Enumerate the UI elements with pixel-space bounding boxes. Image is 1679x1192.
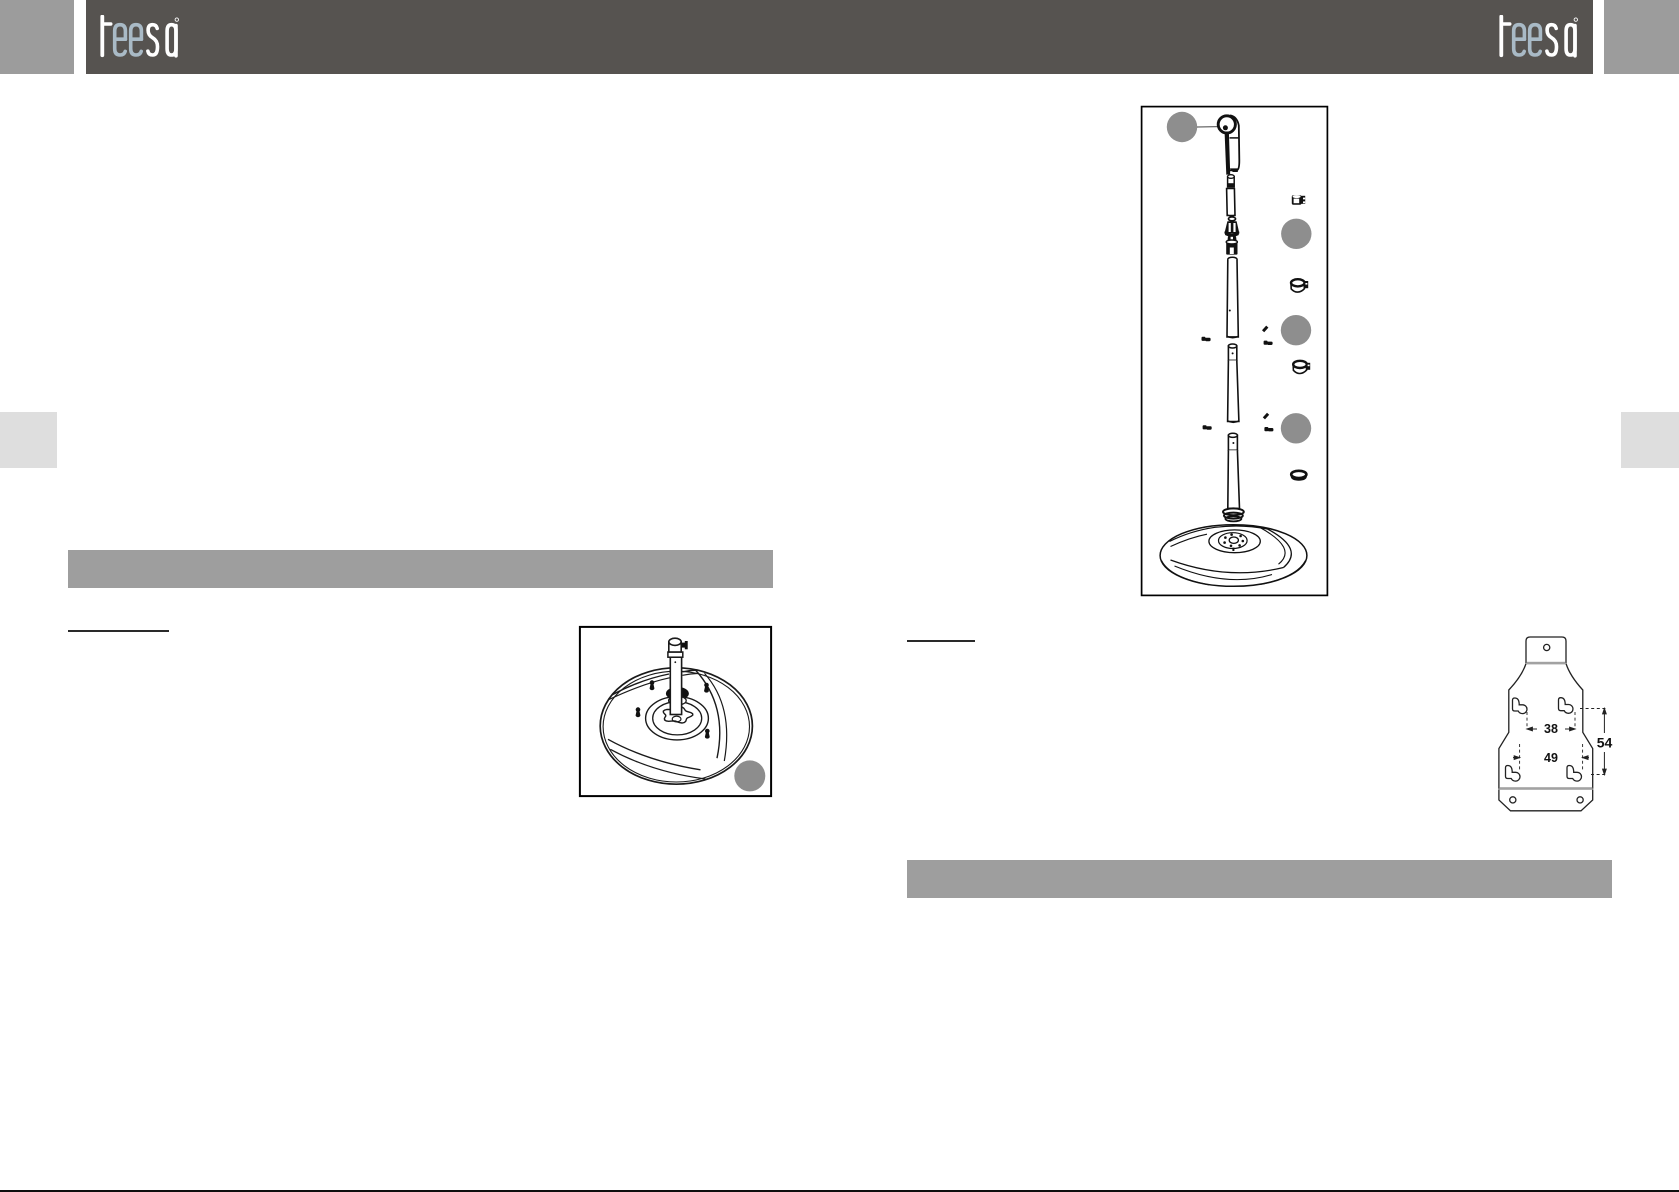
svg-text:54: 54	[1597, 735, 1613, 751]
svg-text:38: 38	[1544, 722, 1558, 736]
svg-text:49: 49	[1544, 751, 1558, 765]
